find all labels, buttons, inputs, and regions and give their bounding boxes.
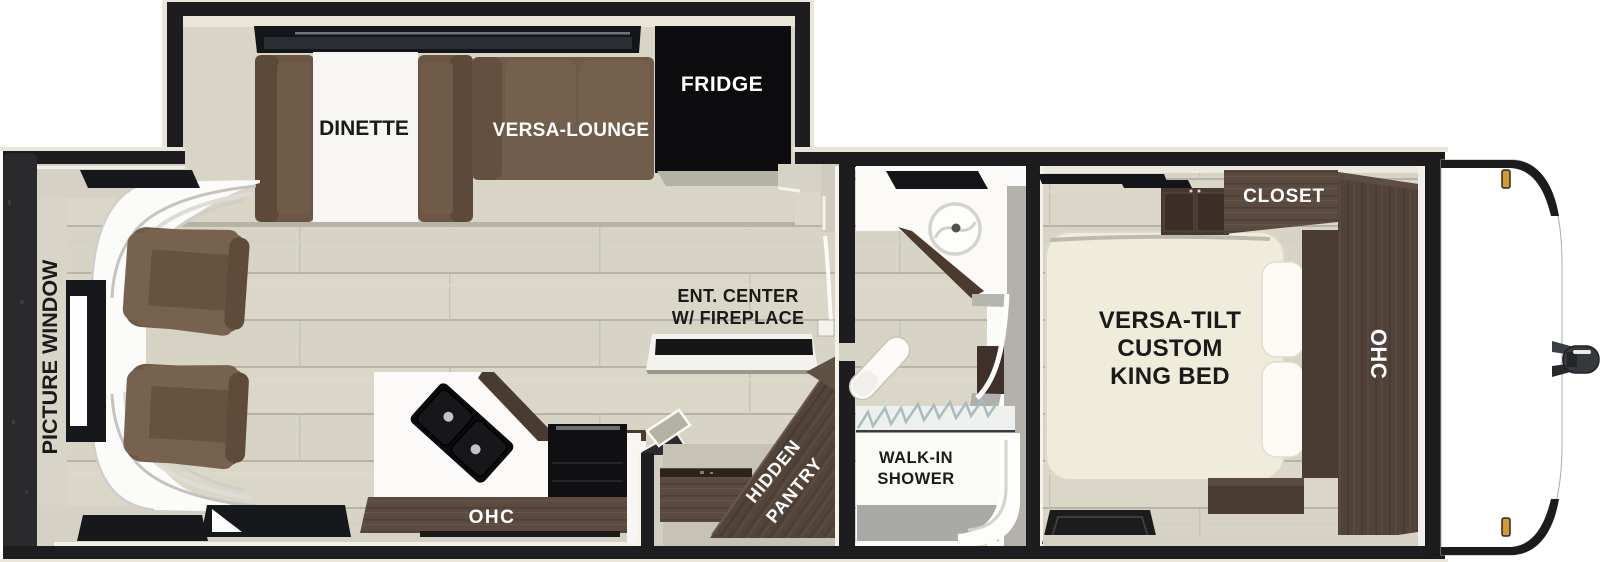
svg-text:OHC: OHC — [1366, 329, 1391, 379]
svg-text:WALK-IN: WALK-IN — [879, 449, 953, 467]
svg-text:DINETTE: DINETTE — [319, 117, 409, 140]
svg-text:CUSTOM: CUSTOM — [1117, 335, 1222, 362]
svg-text:OHC: OHC — [469, 507, 516, 528]
svg-text:W/ FIREPLACE: W/ FIREPLACE — [672, 308, 805, 328]
svg-text:CLOSET: CLOSET — [1243, 186, 1325, 207]
svg-text:FRIDGE: FRIDGE — [681, 73, 763, 96]
svg-text:KING BED: KING BED — [1110, 363, 1230, 390]
svg-text:SHOWER: SHOWER — [877, 470, 954, 488]
svg-text:VERSA-TILT: VERSA-TILT — [1099, 307, 1242, 334]
svg-text:ENT. CENTER: ENT. CENTER — [677, 286, 798, 306]
svg-text:VERSA-LOUNGE: VERSA-LOUNGE — [493, 120, 650, 141]
svg-text:PICTURE WINDOW: PICTURE WINDOW — [38, 259, 62, 454]
